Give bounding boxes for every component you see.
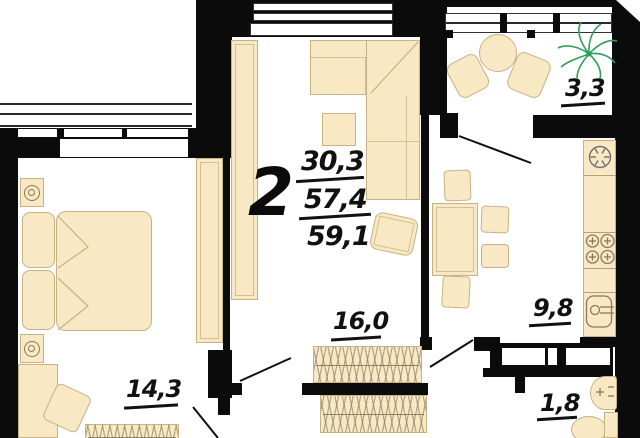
outer-wall-right <box>615 20 640 438</box>
kitchen-area: 9,8 <box>533 296 573 320</box>
living-area-total: 30,3 <box>301 148 364 175</box>
window-slot <box>64 129 122 137</box>
bedside-lamp-icon <box>24 185 40 201</box>
outer-wall-left <box>0 130 18 438</box>
balcony-area: 3,3 <box>565 76 605 100</box>
bedroom-area: 14,3 <box>126 377 181 401</box>
nightstand <box>20 178 44 207</box>
label-underline <box>529 322 571 327</box>
wardrobe-rail-line <box>316 365 419 366</box>
bathroom-area: 1,8 <box>540 391 580 415</box>
kitchen-counter <box>583 140 616 337</box>
counter-divider <box>583 292 616 293</box>
bedroom-window <box>60 139 188 157</box>
kitchen-chair <box>481 206 510 234</box>
vent-shaft-slot <box>502 348 545 365</box>
balcony-rail-line <box>0 113 192 115</box>
bedroom-door-stub <box>218 398 230 415</box>
sofa-ottoman <box>369 211 420 257</box>
living-bottom-wall <box>302 383 428 395</box>
nightstand <box>20 334 44 363</box>
kitchen-chair <box>443 170 471 202</box>
sofa-cushion-line <box>367 141 419 142</box>
balcony-rail-line <box>0 125 192 127</box>
living-room-area: 16,0 <box>333 309 388 333</box>
balcony-kitchen-jamb <box>440 113 458 138</box>
window-slot <box>127 129 188 137</box>
bedroom-wardrobe-hatched <box>85 424 179 438</box>
window-slot <box>18 129 57 137</box>
balcony-left-wall <box>420 0 447 115</box>
total-area: 59,1 <box>307 223 370 250</box>
counter-divider <box>583 268 616 269</box>
ottoman-line <box>373 216 414 253</box>
corner-sofa-side <box>366 40 420 200</box>
sofa-cushion-line <box>406 96 407 199</box>
bedroom-wardrobe <box>196 158 223 343</box>
bathroom-wall-stub <box>515 377 525 393</box>
washbasin-icon <box>590 376 617 410</box>
living-window-bar <box>253 13 393 21</box>
balcony-window-divider <box>500 13 507 33</box>
balcony-window-midline <box>446 22 611 24</box>
living-window-bar <box>253 3 393 11</box>
balcony-window-divider <box>553 13 560 33</box>
label-underline <box>331 335 381 341</box>
counter-divider <box>583 232 616 233</box>
vent-shaft-slot <box>566 348 610 365</box>
balcony-door-swing <box>459 136 531 163</box>
living-door-jamb <box>230 383 242 395</box>
bathroom-top-wall <box>483 368 613 377</box>
balcony-wall-tick <box>527 30 535 38</box>
label-underline <box>561 102 605 107</box>
apartment-area: 57,4 <box>304 186 367 213</box>
bed-duvet <box>56 211 152 331</box>
living-door-swing <box>240 358 291 381</box>
hallway-wardrobe-hatched <box>320 395 427 433</box>
living-left-wall <box>196 0 232 158</box>
kitchen-chair <box>441 275 471 308</box>
counter-divider <box>583 175 616 176</box>
floor-plan: 2 30,3 57,4 59,1 16,0 14,3 9,8 3,3 1,8 <box>0 0 640 438</box>
balcony-top-wall <box>443 0 612 7</box>
kitchen-chair <box>481 244 509 268</box>
bed-pillow <box>22 212 55 268</box>
table-edge-line <box>436 207 474 272</box>
kitchen-table <box>432 203 478 276</box>
balcony-round-table <box>479 34 517 72</box>
rooms-count: 2 <box>248 163 294 222</box>
living-wardrobe-hatched <box>313 346 422 383</box>
bedside-lamp-icon <box>24 341 40 357</box>
toilet-tank <box>604 412 618 438</box>
living-balcony-door <box>250 23 393 36</box>
label-underline <box>124 403 178 409</box>
wardrobe-rail-line <box>323 414 424 415</box>
bedroom-door-wall <box>208 350 232 398</box>
kitchen-door-swing <box>430 340 473 367</box>
coffee-table <box>322 113 356 146</box>
vent-shaft-slot <box>548 348 557 365</box>
balcony-wall-tick <box>445 30 453 38</box>
bed-pillow <box>22 270 55 330</box>
toilet-icon <box>571 416 607 438</box>
balcony-rail-line <box>0 103 192 105</box>
wardrobe-door-line <box>200 162 219 339</box>
bedroom-door-swing <box>193 407 218 438</box>
